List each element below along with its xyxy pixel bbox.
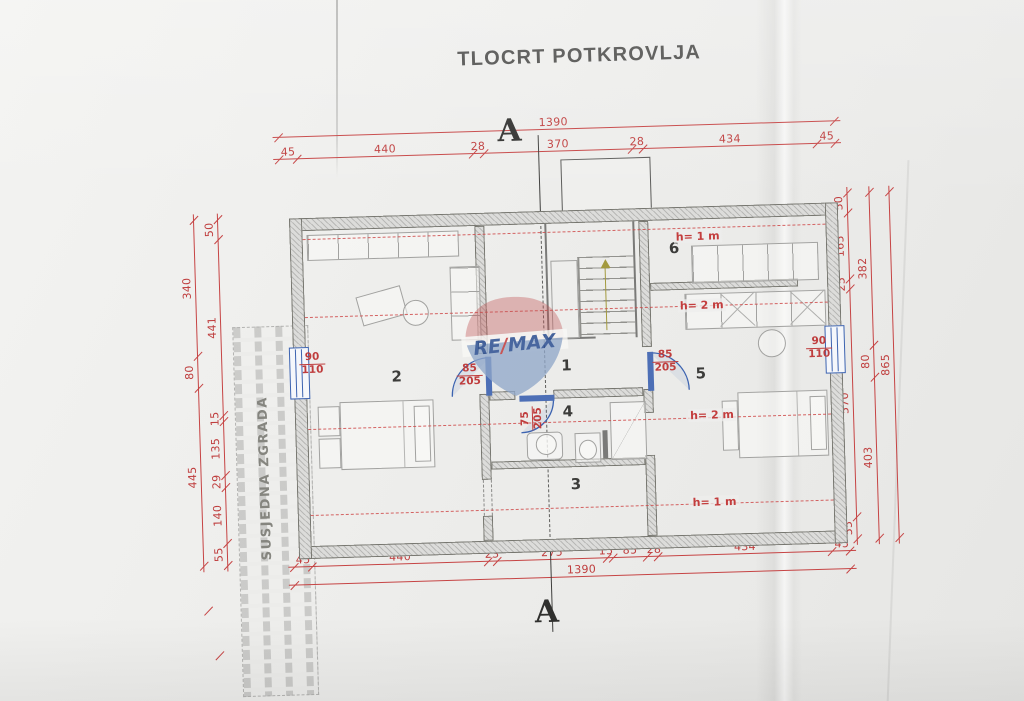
dim-label: 28	[629, 135, 644, 148]
dim-tick	[846, 564, 855, 573]
dim-tick	[830, 117, 839, 126]
dim-tick	[885, 187, 894, 196]
room-label-4: 4	[562, 402, 573, 420]
dim-label: 370	[547, 137, 569, 151]
dim-chain-top-outer: 1390	[279, 121, 835, 137]
dim-label: 45	[281, 145, 296, 158]
dim-label: 441	[205, 317, 219, 339]
dim-tick	[195, 384, 204, 393]
desk	[355, 285, 407, 326]
dim-label: 140	[211, 505, 225, 527]
dim-label: 80	[859, 354, 872, 369]
dim-tick	[200, 561, 209, 570]
section-line	[538, 135, 541, 211]
scan-sheet: TLOCRT POTKROVLJA SUSJEDNA ZGRADA 1390 4…	[0, 0, 1024, 701]
chimney-box	[560, 157, 652, 213]
dim-label: 29	[210, 474, 223, 489]
door-room4-size: 75205	[520, 406, 545, 431]
nightstand	[319, 438, 342, 469]
height-label: h= 1 m	[690, 495, 738, 509]
dim-label: 382	[856, 257, 870, 279]
pillow	[809, 396, 827, 450]
pillow	[414, 405, 432, 461]
height-line	[311, 500, 834, 517]
section-marker-top: A	[497, 113, 522, 150]
room-label-3: 3	[571, 475, 582, 493]
dim-label: 340	[180, 277, 194, 299]
nightstand	[318, 406, 341, 437]
dim-label: 50	[203, 222, 216, 237]
height-label: h= 1 m	[674, 229, 722, 243]
table	[757, 329, 786, 358]
dim-tick	[870, 373, 879, 382]
dim-chain-bottom-outer: 1390	[295, 569, 851, 585]
dim-tick	[870, 341, 879, 350]
dim-tick	[895, 533, 904, 542]
stair-arrow-head-icon	[600, 259, 610, 268]
dim-tick	[204, 606, 213, 615]
dim-label: 440	[374, 142, 396, 156]
dim-chain-left-outer: 340 80 445	[194, 220, 204, 566]
dim-label: 1390	[567, 563, 597, 577]
height-label: h= 2 m	[678, 298, 726, 312]
dim-label: 434	[719, 132, 741, 146]
dim-label: 80	[183, 365, 196, 380]
wall-interior	[483, 516, 494, 541]
wardrobe-row	[691, 242, 819, 284]
dim-label: 1390	[538, 115, 568, 129]
dim-tick	[215, 651, 224, 660]
dim-label: 865	[879, 354, 893, 376]
shower	[610, 401, 648, 460]
dim-label: 55	[212, 547, 225, 562]
dim-tick	[274, 133, 283, 142]
dim-tick	[875, 533, 884, 542]
dim-label: 45	[819, 129, 834, 142]
dim-tick	[853, 534, 862, 543]
dim-label: 135	[209, 438, 223, 460]
dim-chain-right-outer: 865	[889, 192, 899, 538]
dim-label: 445	[186, 466, 200, 488]
dim-label: 28	[470, 140, 485, 153]
dim-tick	[224, 561, 233, 570]
dim-chain-left-inner: 50 441 15 135 29 140 55	[218, 220, 228, 566]
dim-tick	[190, 216, 199, 225]
dim-tick	[194, 352, 203, 361]
wall-stub	[602, 430, 608, 458]
window-left-size: 90110	[299, 352, 326, 377]
height-label: h= 2 m	[688, 408, 736, 422]
room-label-5: 5	[695, 364, 706, 382]
furniture-x-mark	[789, 290, 825, 325]
dim-tick	[865, 188, 874, 197]
drawing-title: TLOCRT POTKROVLJA	[457, 41, 701, 71]
wall-interior	[645, 455, 657, 536]
window-right-size: 90110	[806, 335, 833, 360]
dim-chain-right-inner: 50 165 25 570 55	[847, 193, 857, 539]
dim-chain-top-inner: 45 440 28 370 28 434 45	[279, 143, 835, 159]
section-marker-bottom: A	[534, 594, 559, 631]
room-label-2: 2	[391, 367, 402, 385]
wall-interior	[479, 394, 492, 480]
floorplan-drawing: TLOCRT POTKROVLJA SUSJEDNA ZGRADA 1390 4…	[0, 0, 1024, 701]
dim-label: 403	[862, 446, 876, 468]
wall-outer-bottom	[299, 530, 848, 559]
dim-label: 15	[208, 411, 221, 426]
door-room5-size: 85205	[652, 349, 679, 374]
remax-watermark: RE/MAX	[448, 287, 581, 403]
